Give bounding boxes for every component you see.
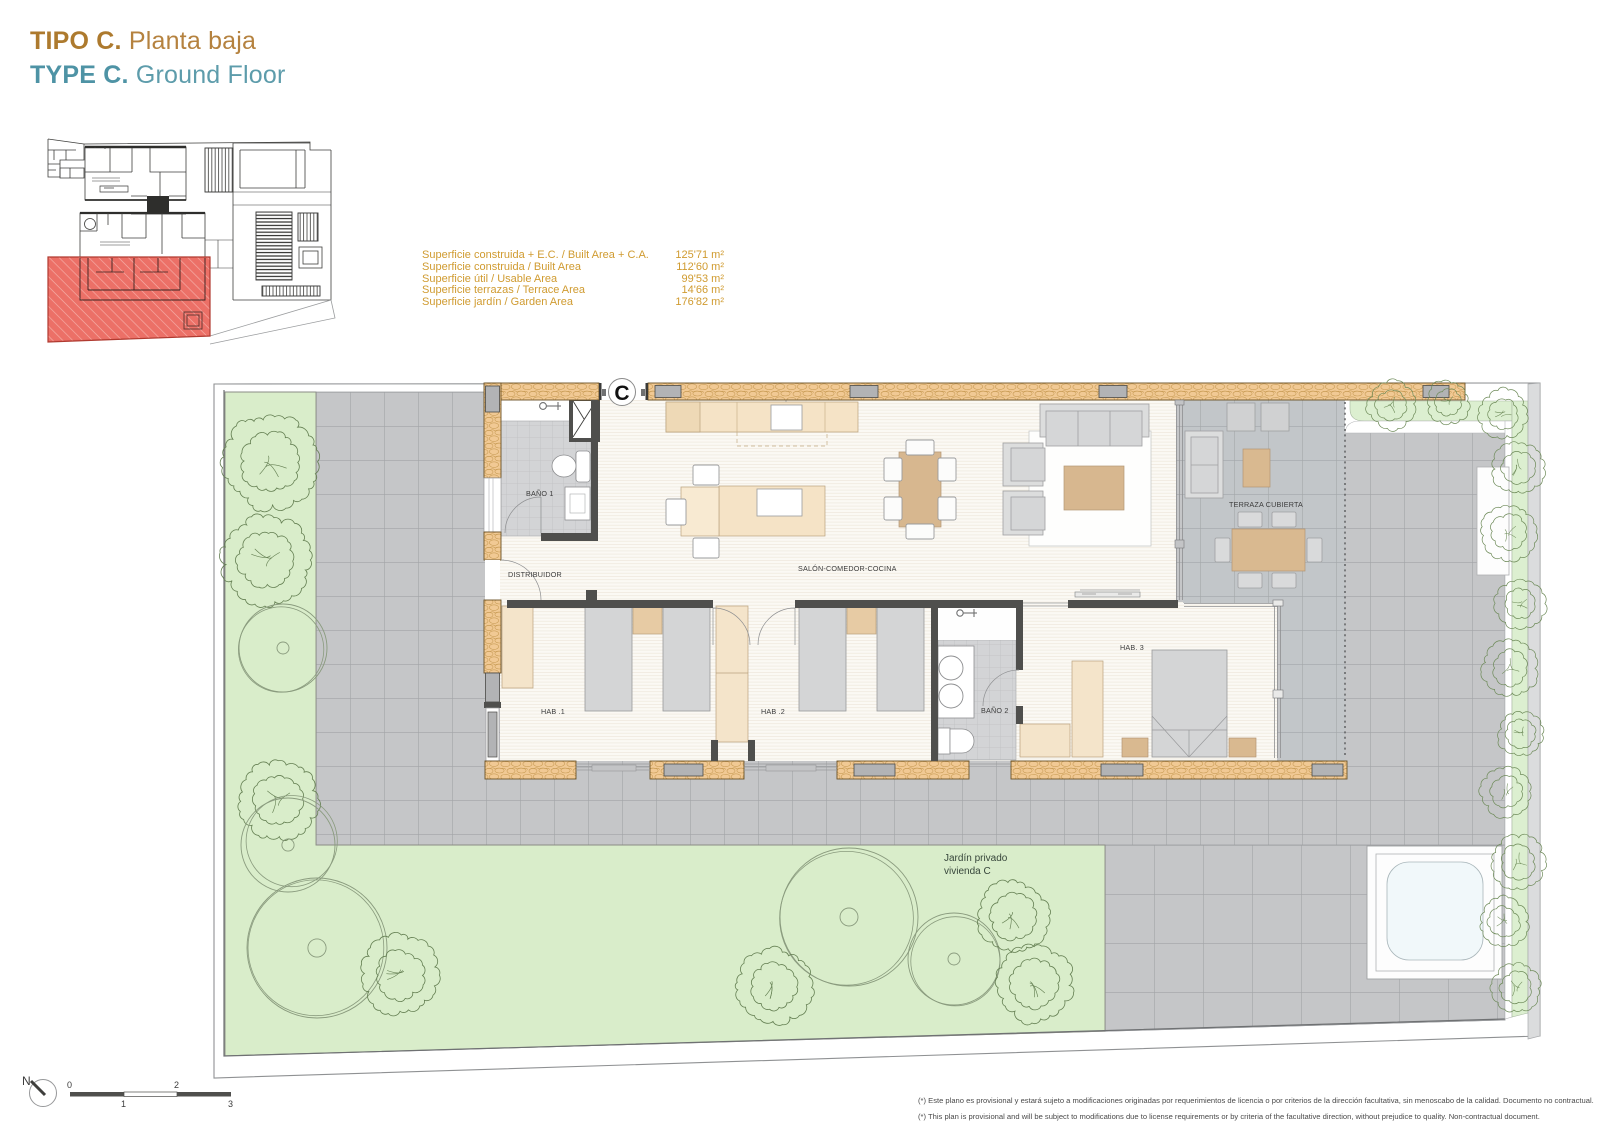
svg-text:TERRAZA CUBIERTA: TERRAZA CUBIERTA (1229, 500, 1303, 509)
svg-text:3: 3 (228, 1099, 233, 1109)
svg-text:SALÓN-COMEDOR-COCINA: SALÓN-COMEDOR-COCINA (798, 564, 897, 573)
svg-text:BAÑO 2: BAÑO 2 (981, 706, 1009, 715)
svg-text:2: 2 (174, 1080, 179, 1090)
svg-text:HAB. 3: HAB. 3 (1120, 643, 1144, 652)
svg-text:BAÑO 1: BAÑO 1 (526, 489, 554, 498)
svg-text:C: C (614, 382, 629, 405)
svg-text:HAB .2: HAB .2 (761, 707, 785, 716)
svg-text:DISTRIBUIDOR: DISTRIBUIDOR (508, 570, 562, 579)
svg-text:0: 0 (67, 1080, 72, 1090)
svg-text:HAB .1: HAB .1 (541, 707, 565, 716)
svg-text:1: 1 (121, 1099, 126, 1109)
svg-text:N: N (22, 1074, 31, 1088)
svg-text:Jardín privado: Jardín privado (944, 853, 1008, 864)
svg-text:vivienda C: vivienda C (944, 866, 991, 877)
